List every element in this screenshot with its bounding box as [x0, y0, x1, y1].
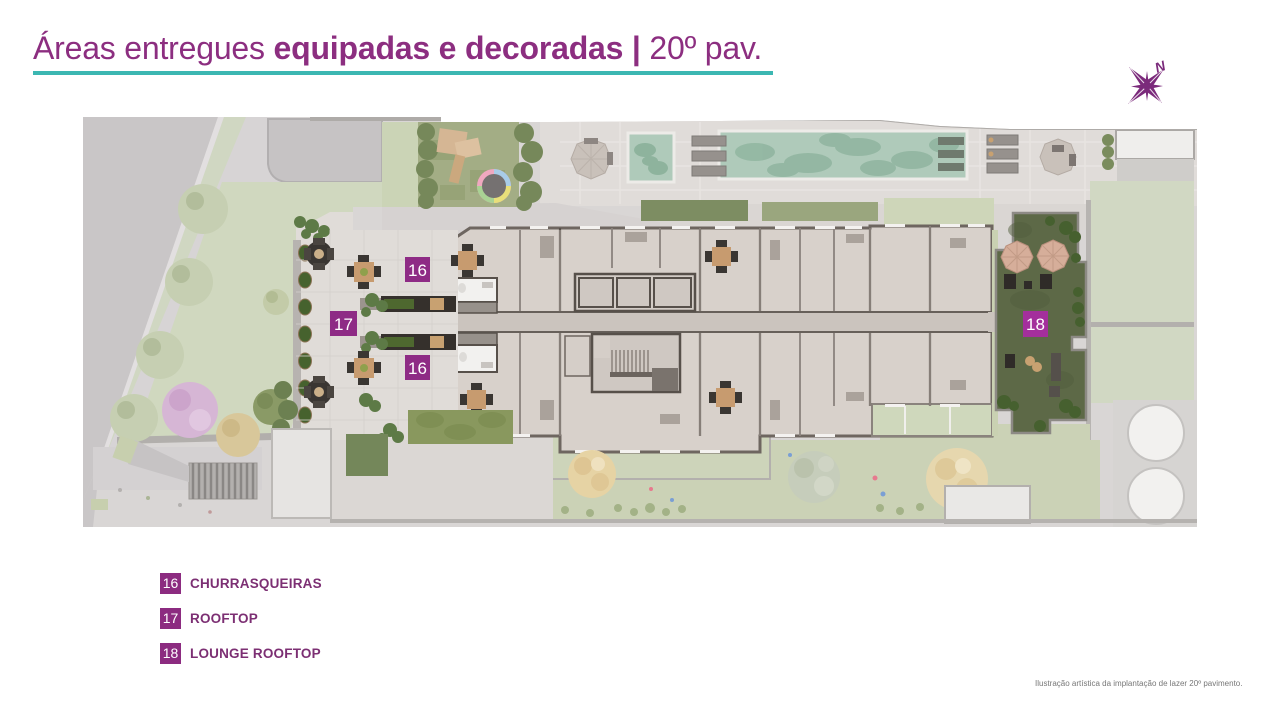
svg-text:16: 16 — [408, 261, 427, 280]
svg-text:16: 16 — [408, 359, 427, 378]
svg-text:N: N — [1153, 57, 1169, 76]
svg-text:18: 18 — [1026, 315, 1045, 334]
svg-text:17: 17 — [334, 315, 353, 334]
